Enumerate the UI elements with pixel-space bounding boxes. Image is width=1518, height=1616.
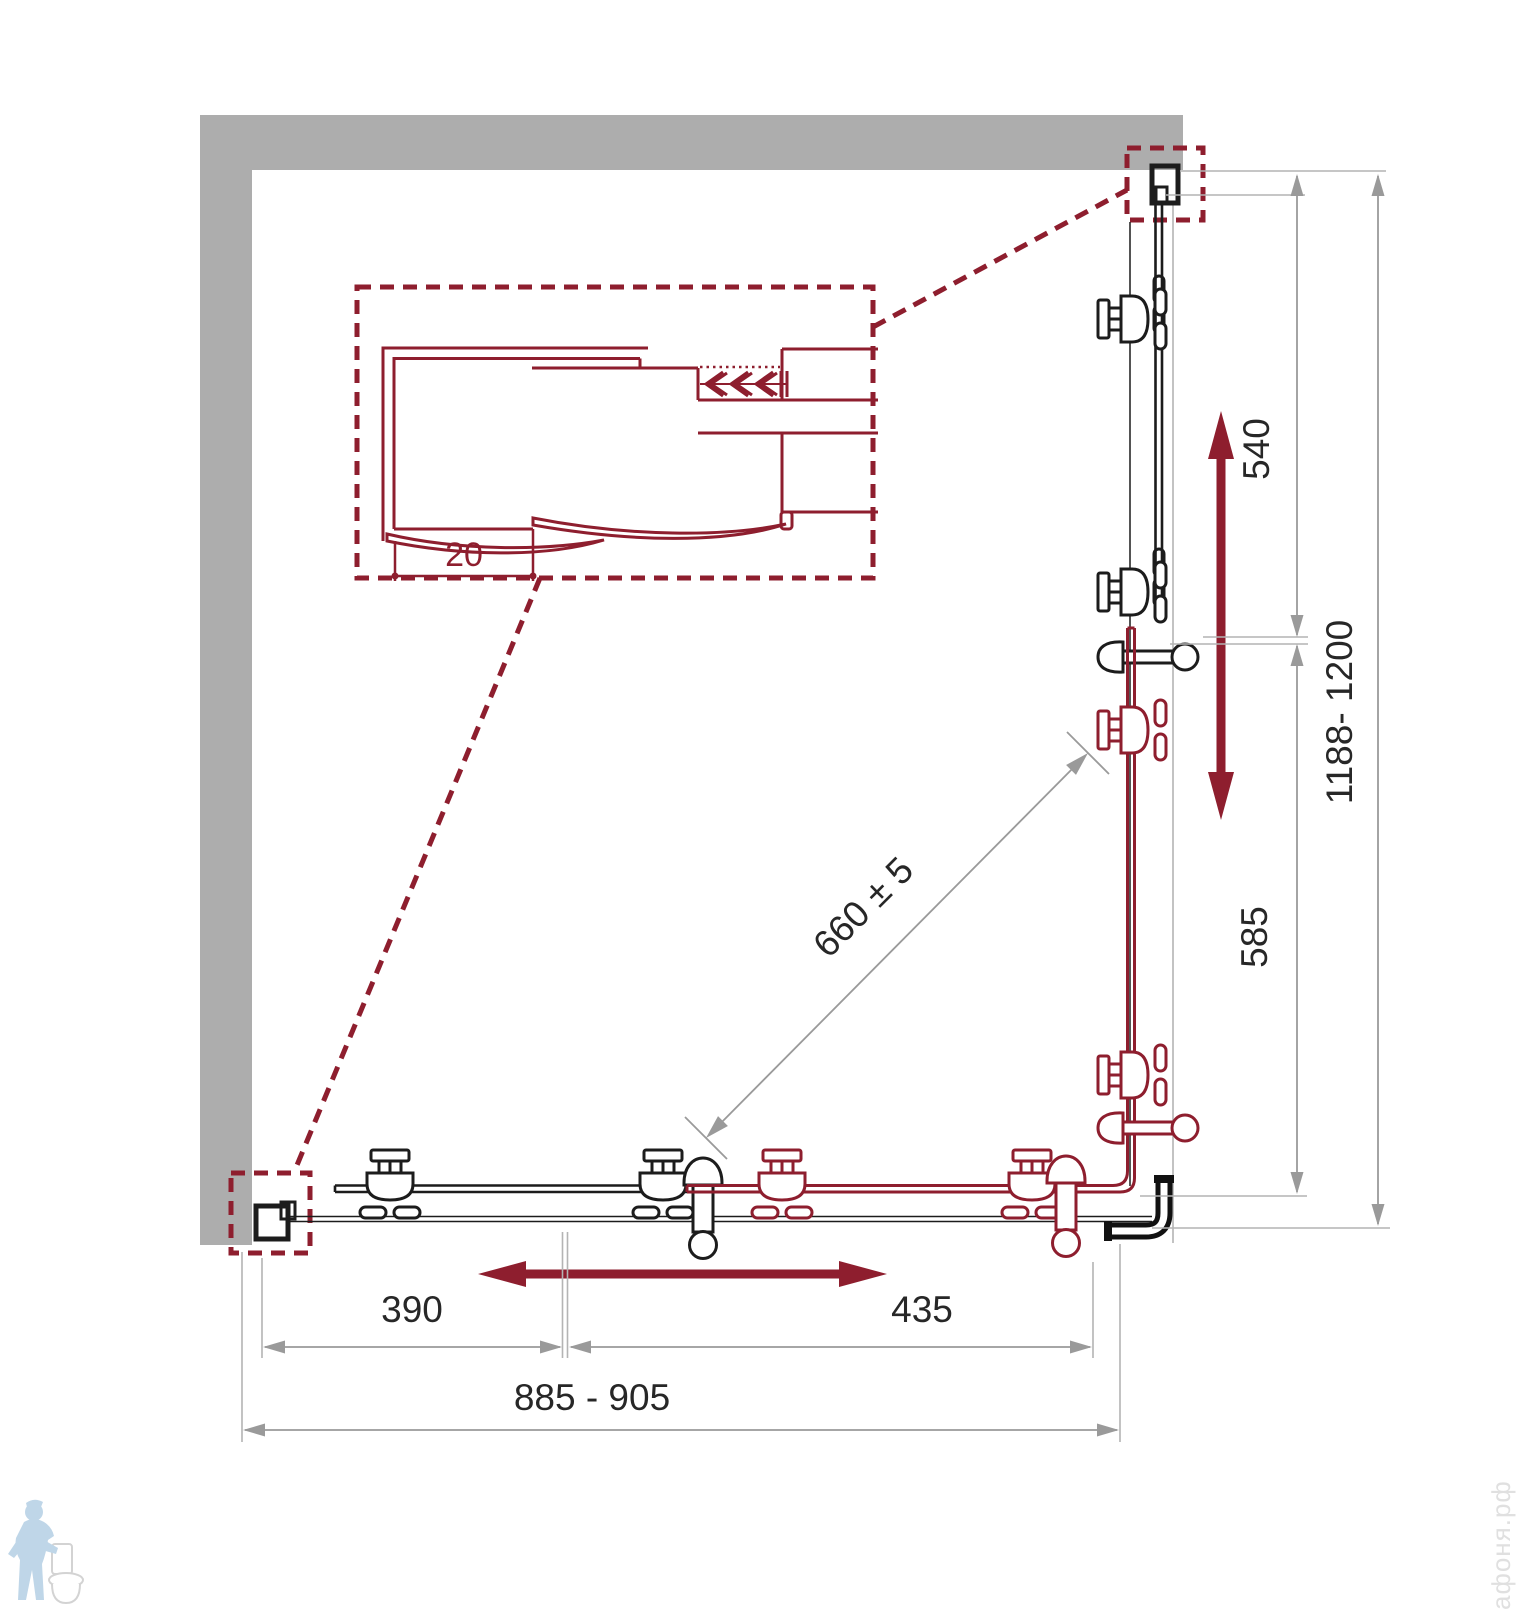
profile-channel	[532, 359, 698, 401]
red-panel-glass	[687, 628, 1135, 1192]
watermark-logo	[8, 1500, 83, 1603]
bottom-wall-profile	[256, 1202, 295, 1239]
top-wall-profile	[1152, 166, 1178, 203]
dimension-660: 660 ± 5	[685, 732, 1109, 1159]
wall-top	[200, 115, 1183, 170]
door-glass-section	[533, 518, 786, 538]
profile-outer-line	[383, 348, 648, 541]
callout-boxes	[231, 148, 1203, 1253]
label-390: 390	[381, 1289, 443, 1330]
label-660: 660 ± 5	[805, 849, 921, 965]
label-540: 540	[1236, 418, 1277, 480]
label-885-905: 885 - 905	[514, 1377, 670, 1418]
dimensions: 540 585 1188- 1200 660 ± 5 390	[243, 174, 1385, 1437]
plumber-icon	[8, 1500, 58, 1600]
right-door-handle	[1098, 642, 1198, 672]
dimension-390: 390	[263, 1289, 562, 1354]
dimension-885-905: 885 - 905	[243, 1377, 1119, 1437]
bottom-door-carriages	[360, 1150, 693, 1218]
shower-enclosure-dimension-diagram: 20	[0, 0, 1518, 1616]
red-corner-panels	[687, 628, 1198, 1257]
dimension-540: 540	[1236, 174, 1304, 637]
detail-width-label: 20	[445, 536, 483, 574]
label-585: 585	[1234, 906, 1275, 968]
label-435: 435	[891, 1289, 953, 1330]
callout-connector-top	[873, 190, 1127, 327]
fixed-glass-section	[387, 534, 604, 553]
horizontal-slide-arrow	[478, 1261, 887, 1287]
dimension-435: 435	[569, 1289, 1092, 1354]
profile-inner-line	[394, 359, 640, 530]
vertical-slide-arrow	[1208, 411, 1234, 820]
label-1188-1200: 1188- 1200	[1319, 620, 1360, 804]
wall-left	[200, 115, 252, 1245]
diagram-canvas: 20	[0, 0, 1518, 1616]
bottom-assembly	[256, 1150, 1152, 1259]
right-door-glass	[1156, 203, 1163, 600]
callout-connector-bottom	[295, 578, 540, 1170]
dimension-1188-1200: 1188- 1200	[1319, 174, 1385, 1226]
watermark-site-text: афоня.рф	[1486, 1480, 1516, 1610]
dimension-585: 585	[1234, 644, 1304, 1194]
